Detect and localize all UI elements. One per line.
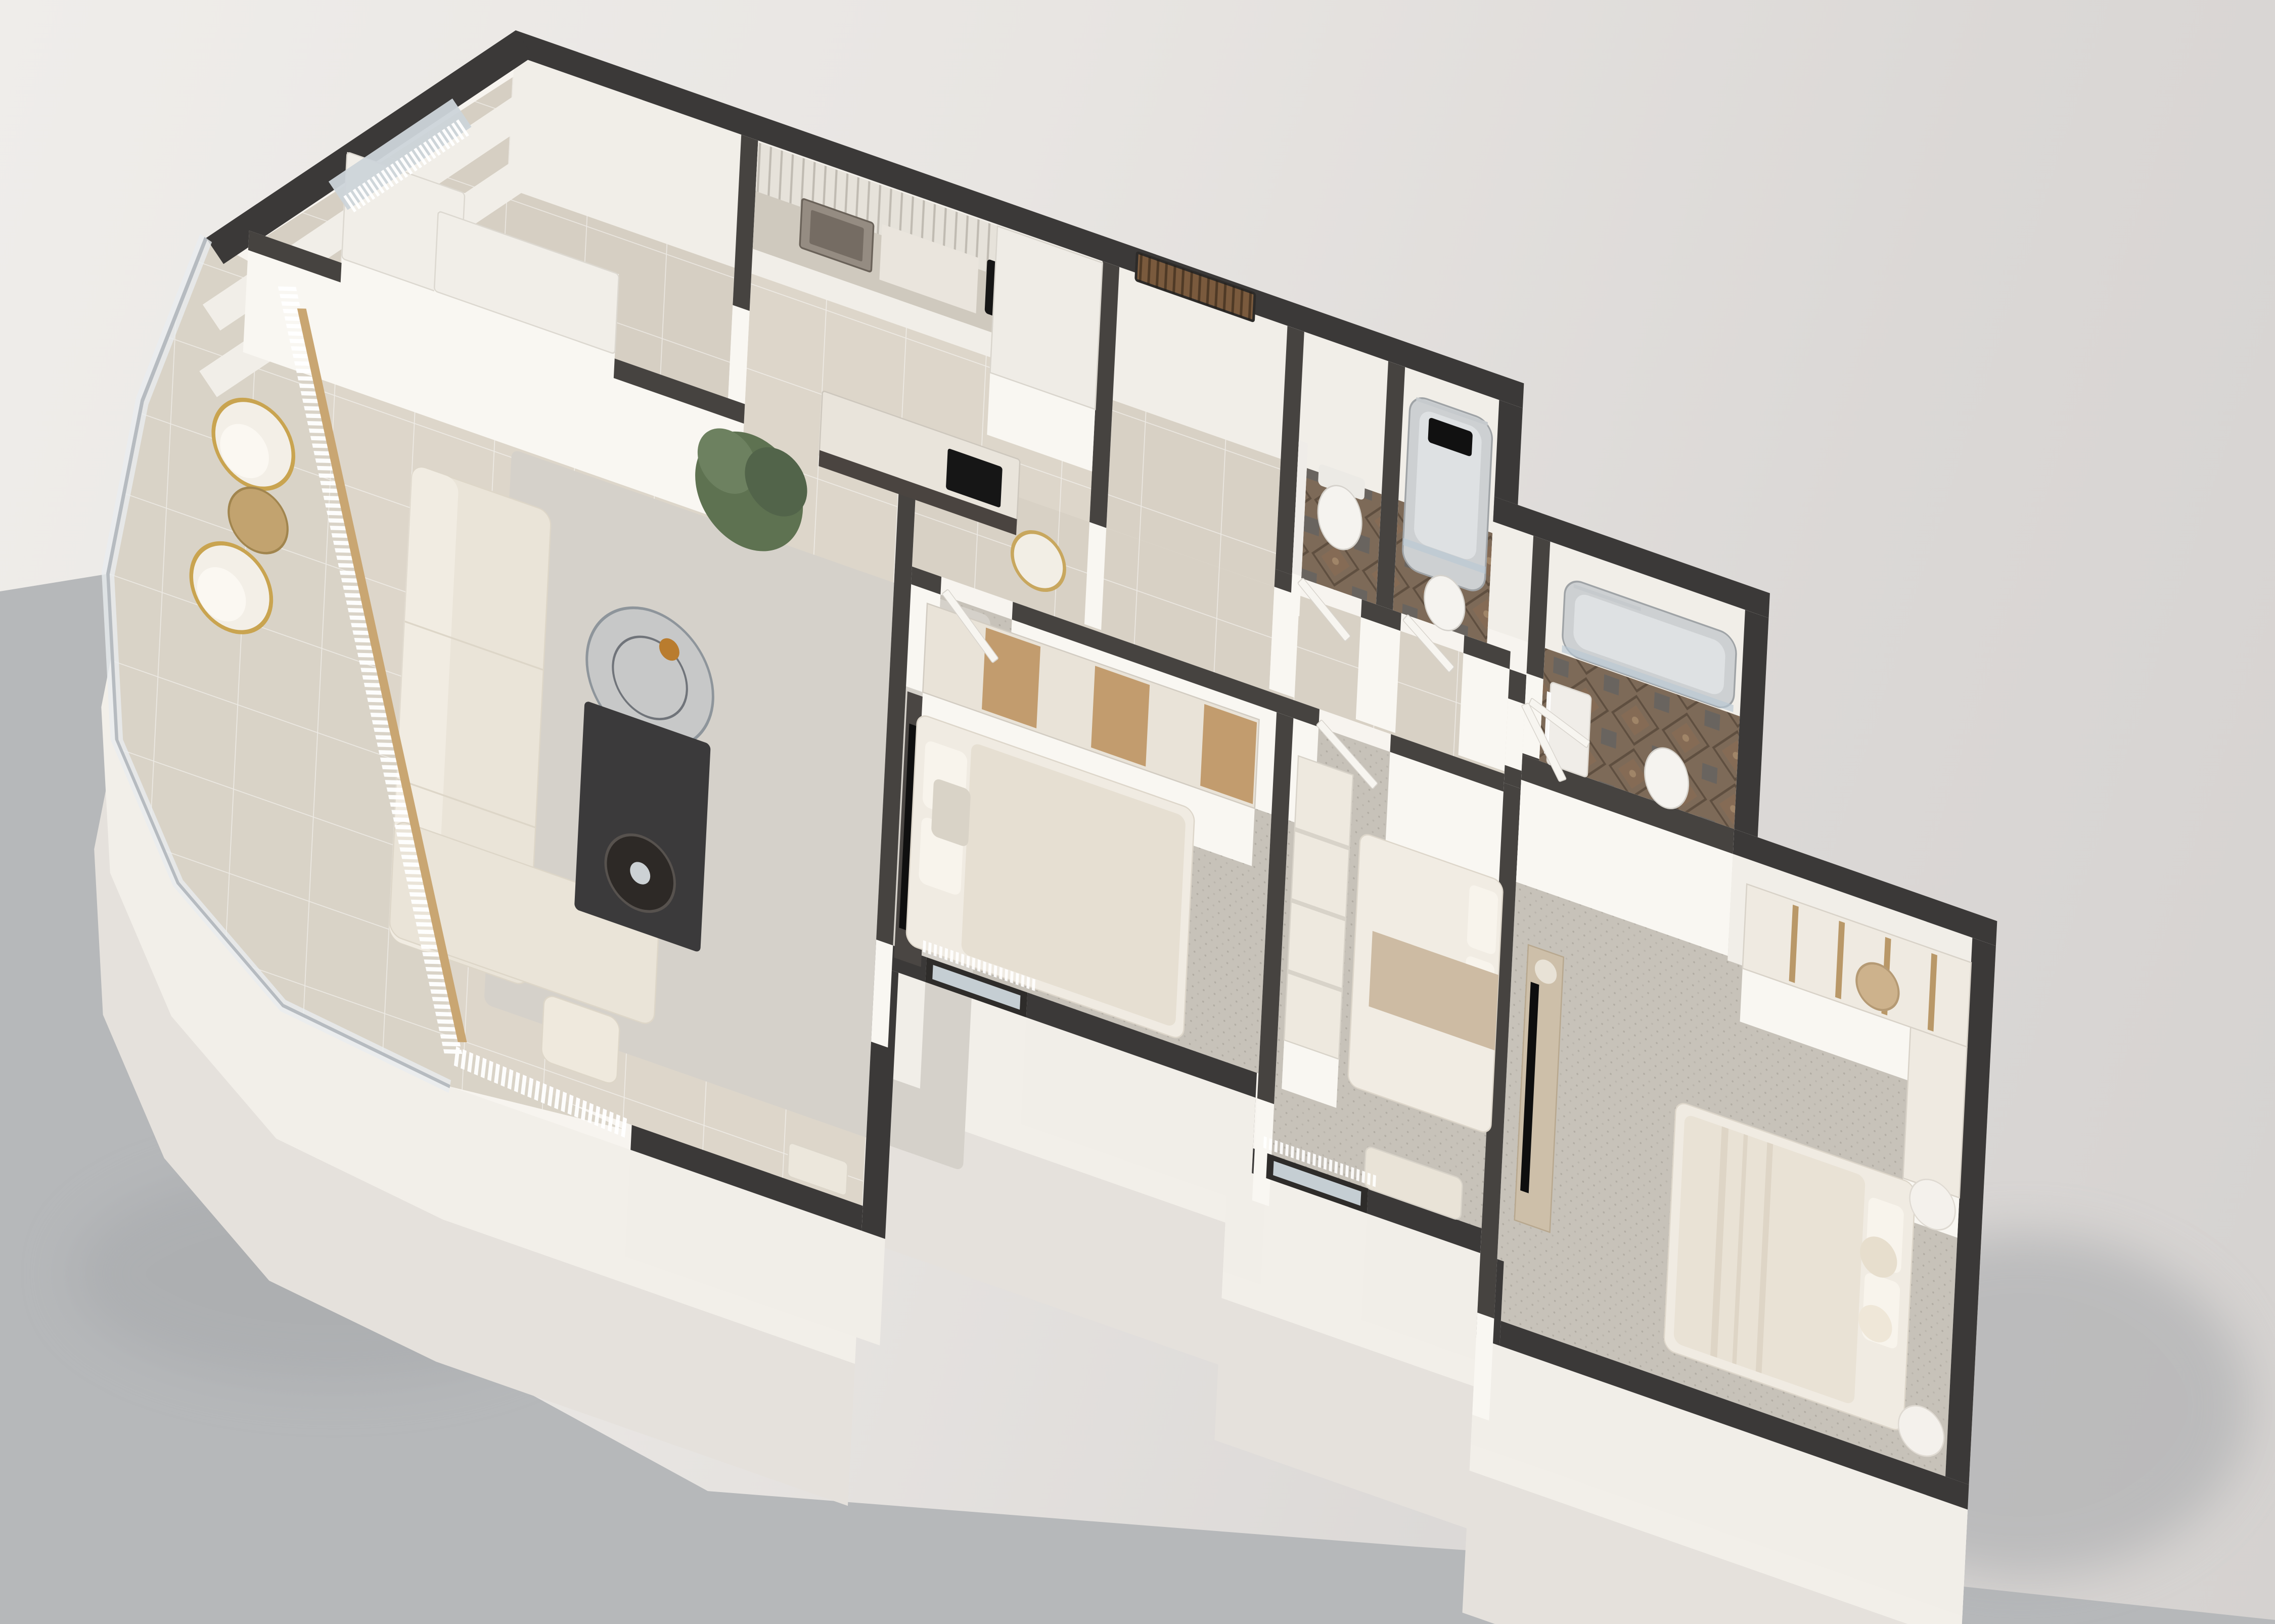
render-stage: [0, 0, 2275, 1624]
floorplan-3d-render: [0, 0, 2275, 1624]
wall-corridor-east-a: [1508, 669, 1526, 705]
bed2-pillow-1: [1467, 884, 1498, 956]
media-mat: [574, 700, 711, 953]
master-wardrobe-open-side: [1903, 1027, 1967, 1198]
